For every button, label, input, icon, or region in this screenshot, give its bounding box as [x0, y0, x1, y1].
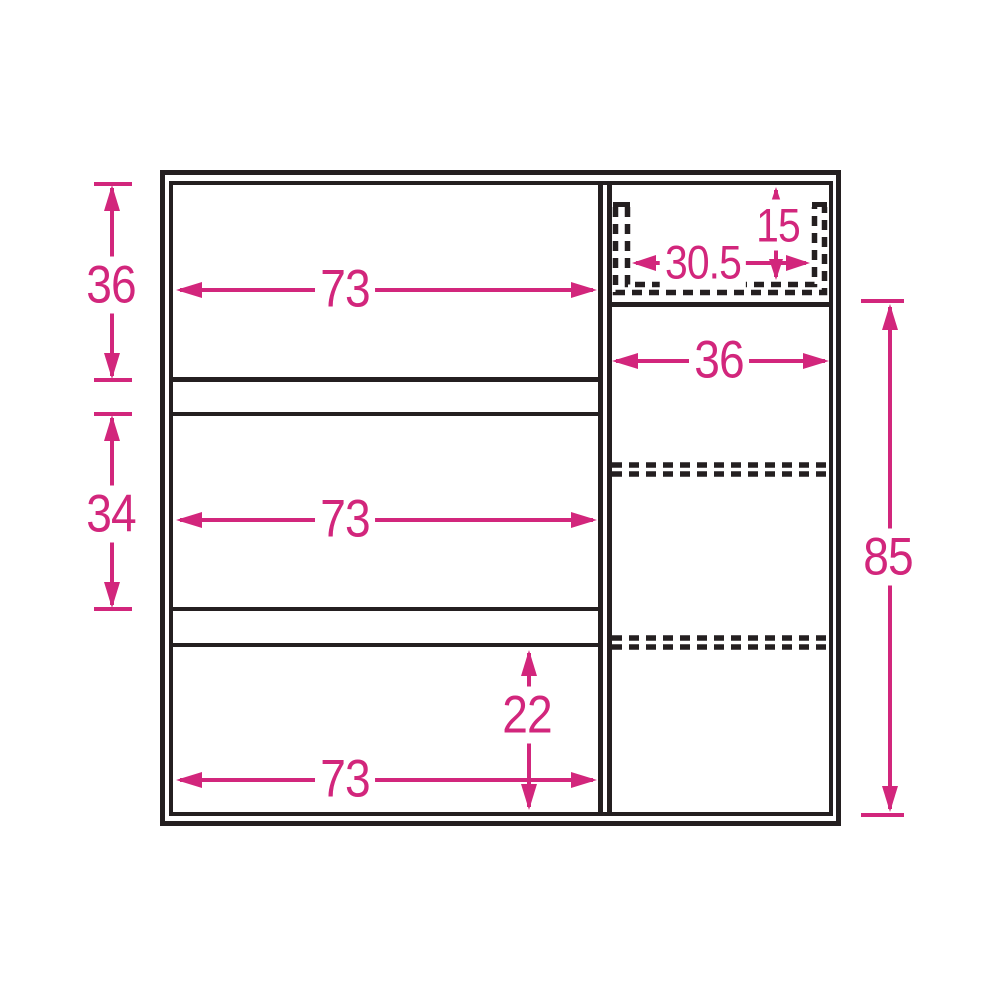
- dim-label-left-middle-height: 34: [81, 486, 141, 543]
- arrowhead-left: [176, 282, 202, 298]
- dimension-73-middle: [176, 512, 597, 528]
- shelf-line: [173, 643, 598, 647]
- dim-label-right-inner-height: 85: [858, 529, 918, 586]
- adjustable-shelf-positions: [612, 465, 829, 647]
- diagram-canvas: 36 34 73 73 73 22 15 30.5 36 85: [0, 0, 1000, 1000]
- arrowhead-up: [104, 185, 120, 211]
- bottom-outer-panel-line: [160, 821, 841, 826]
- center-divider-left-line: [598, 185, 603, 812]
- slot-left-top-cap: [613, 202, 630, 207]
- arrowhead-down: [882, 786, 898, 812]
- center-divider-right-line: [607, 185, 612, 812]
- dim-label-left-bottom-width: 73: [315, 751, 375, 808]
- dim-label-slot-height: 15: [751, 200, 805, 251]
- slot-right-top-cap: [812, 202, 827, 207]
- arrowhead-left: [176, 512, 202, 528]
- left-outer-panel-line: [160, 170, 165, 826]
- shelf-line: [173, 607, 598, 611]
- arrowhead-left: [176, 772, 202, 788]
- arrowhead-up: [882, 304, 898, 330]
- arrowhead-right: [571, 512, 597, 528]
- top-inner-panel-line: [169, 181, 833, 185]
- arrowhead-down: [521, 784, 537, 810]
- right-outer-panel-line: [836, 170, 841, 826]
- dimension-73-top: [176, 282, 597, 298]
- arrowhead-up: [104, 415, 120, 441]
- cabinet-diagram-svg: [0, 0, 1000, 1000]
- arrowhead-left: [632, 255, 656, 271]
- arrowhead-right: [786, 255, 810, 271]
- arrowhead-right: [571, 772, 597, 788]
- bottom-inner-panel-line: [169, 812, 833, 816]
- left-inner-panel-line: [169, 181, 173, 816]
- dim-label-left-top-height: 36: [81, 257, 141, 314]
- dim-label-left-middle-width: 73: [315, 491, 375, 548]
- dim-label-right-inner-width: 36: [689, 332, 749, 389]
- arrowhead-up: [521, 650, 537, 676]
- arrowhead-down: [104, 353, 120, 379]
- right-section-fixed-shelf-line: [612, 302, 829, 307]
- right-inner-panel-line: [829, 181, 833, 816]
- arrowhead-down: [104, 582, 120, 608]
- dim-label-left-top-width: 73: [315, 261, 375, 318]
- dim-label-left-bottom-height: 22: [497, 687, 557, 744]
- arrowhead-right: [571, 282, 597, 298]
- shelf-line: [173, 412, 598, 416]
- dim-label-slot-width: 30.5: [660, 237, 747, 288]
- arrowhead-right: [803, 353, 829, 369]
- arrowhead-left: [612, 353, 638, 369]
- shelf-line: [173, 377, 598, 382]
- top-outer-panel-line: [160, 170, 841, 175]
